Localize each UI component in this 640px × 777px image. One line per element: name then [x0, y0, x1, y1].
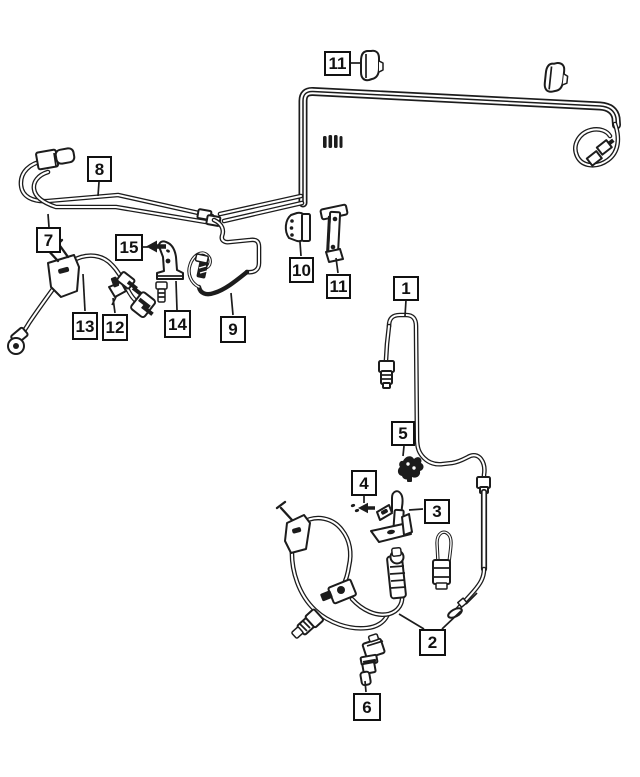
line-clip-5 — [398, 456, 424, 482]
callout-4: 4 — [351, 470, 377, 496]
flare-nut-fitting — [379, 361, 394, 388]
parts-diagram: 11 8 7 15 13 12 14 9 10 11 1 5 4 3 2 6 — [0, 0, 640, 777]
front-hose-2-left — [277, 502, 406, 639]
callout-11-mid: 11 — [326, 274, 351, 299]
hose-bracket — [277, 502, 310, 553]
callout-1: 1 — [393, 276, 419, 301]
callout-2: 2 — [419, 629, 446, 656]
bracket-screw — [156, 282, 167, 302]
ribbed-end-fitting — [387, 547, 406, 598]
banjo-bolt-fitting — [117, 271, 157, 318]
ribbed-grommet — [323, 135, 343, 148]
clip-10 — [286, 213, 310, 241]
hose-bracket-3 — [371, 491, 412, 542]
callout-12: 12 — [102, 314, 128, 341]
retainer-clip-left — [361, 51, 383, 80]
callout-5: 5 — [391, 421, 415, 446]
callout-11-top: 11 — [324, 51, 351, 76]
hose-loop-fitting — [433, 532, 451, 589]
chassis-brake-tube-bundle — [303, 91, 618, 203]
sensor-6 — [360, 634, 385, 686]
callout-6: 6 — [353, 693, 381, 721]
arrow-4 — [358, 503, 375, 513]
rear-brake-tubes-7-8 — [21, 148, 302, 227]
tube-end-fitting — [36, 148, 75, 170]
callout-14: 14 — [164, 310, 191, 338]
front-brake-line-1 — [379, 315, 490, 493]
rear-hose-9 — [189, 220, 259, 294]
retainer-clip-right — [544, 62, 569, 94]
callout-15: 15 — [115, 234, 143, 261]
callout-10: 10 — [289, 257, 314, 283]
callout-9: 9 — [220, 316, 246, 343]
wheel-speed-sensor-connector — [291, 609, 323, 639]
callout-13: 13 — [72, 312, 98, 340]
callout-7: 7 — [36, 227, 61, 253]
diagram-artwork — [0, 0, 640, 777]
callout-3: 3 — [424, 499, 450, 524]
bracket-11 — [320, 204, 348, 262]
hose-eyelet-end — [8, 327, 28, 354]
callout-8: 8 — [87, 156, 112, 182]
